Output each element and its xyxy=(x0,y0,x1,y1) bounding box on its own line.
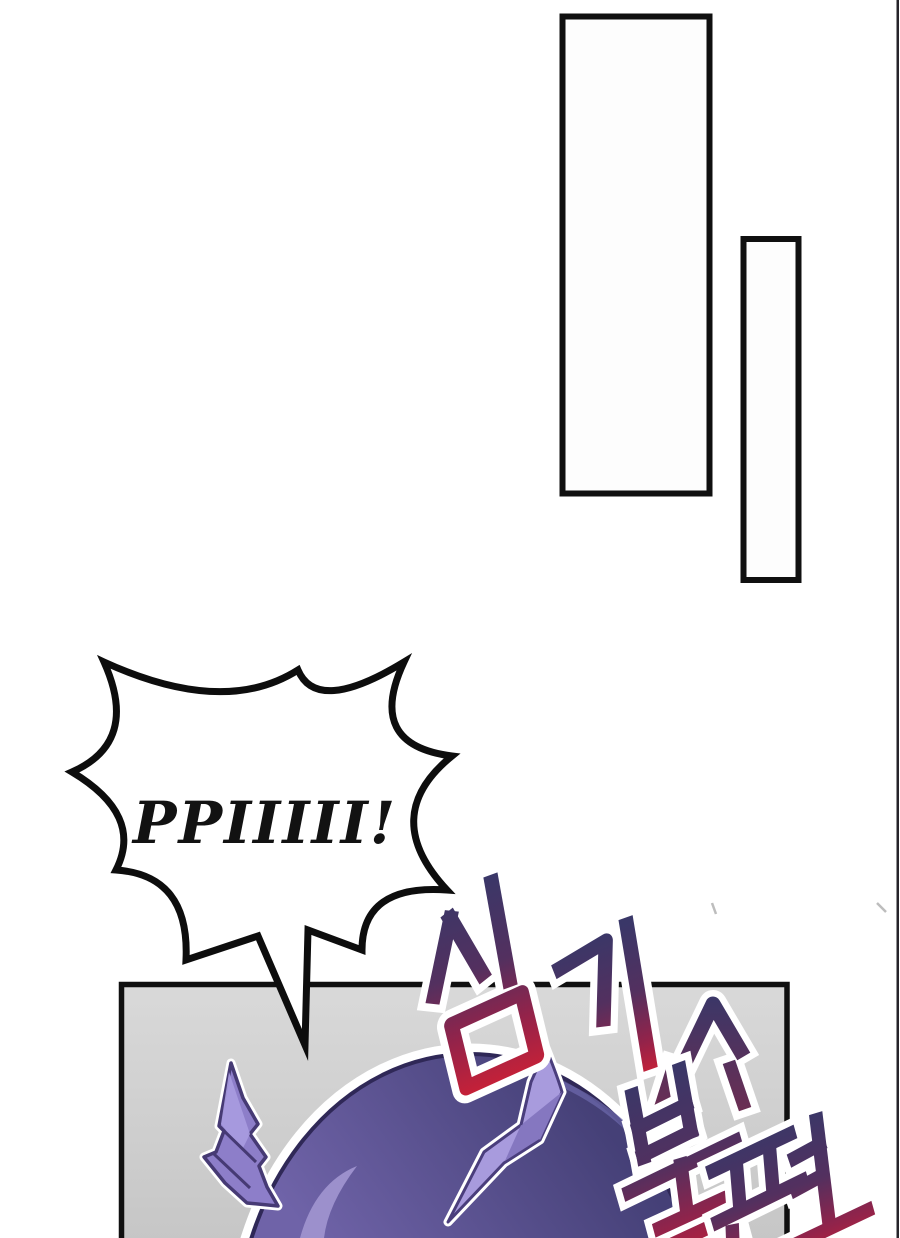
empty-panel-small xyxy=(744,239,799,580)
empty-panel-large xyxy=(563,17,710,494)
comic-page: PPIIIII! xyxy=(0,0,900,1238)
speech-bubble-text: PPIIIII! xyxy=(131,789,397,857)
comic-canvas: PPIIIII! xyxy=(0,0,900,1238)
page-edge-line xyxy=(897,0,900,1238)
